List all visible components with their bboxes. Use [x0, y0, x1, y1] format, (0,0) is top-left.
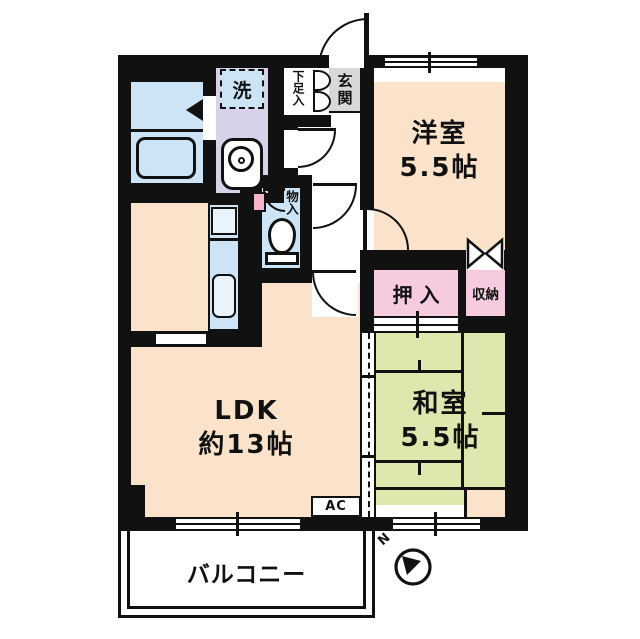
wall: [118, 68, 216, 82]
kitchen-sink-icon: [212, 274, 236, 318]
oshiire-label: 押入: [386, 279, 447, 308]
wall: [360, 68, 374, 113]
shuunou-label-wrap: 収納: [466, 281, 505, 305]
washroom-door-arc: [298, 130, 336, 168]
japanese-room-label: 和室 5.5帖: [376, 388, 505, 456]
corner-alcove: [464, 487, 505, 517]
ac-label: AC: [325, 499, 347, 514]
wall: [284, 115, 331, 127]
ac-unit: AC: [311, 496, 361, 517]
compass-icon: [392, 546, 434, 588]
genkan-label: 玄関: [335, 73, 356, 107]
wall: [300, 188, 312, 268]
entrance-door-leaf: [364, 13, 369, 70]
sliding-partition-divider: [360, 455, 376, 458]
wall: [240, 268, 312, 283]
hall-door-arc: [313, 185, 357, 229]
wall: [458, 270, 466, 316]
western-room-label: 洋室 5.5帖: [374, 118, 505, 186]
washbasin-drain: [238, 157, 245, 164]
oshiire-label-wrap: 押入: [374, 277, 458, 309]
sliding-partition: [360, 333, 376, 517]
bathroom-divider: [131, 129, 203, 132]
stove-icon: [211, 207, 237, 235]
monoire-label: 物入: [281, 190, 301, 222]
washer-box: 洗: [220, 69, 264, 109]
toilet-bowl-icon: [268, 218, 296, 254]
entrance-door-arc: [318, 18, 368, 68]
tatami-tick: [418, 463, 421, 475]
washroom-door-gap: [284, 130, 298, 168]
window-tick: [434, 512, 437, 536]
window-tick: [428, 52, 431, 73]
room-genkan: 玄関: [329, 68, 361, 113]
bathtub-icon: [136, 137, 196, 179]
window-western: [385, 56, 477, 68]
counter-divider: [208, 238, 240, 241]
room-kitchen: [131, 203, 208, 331]
shuunou-label: 収納: [472, 283, 499, 303]
washer-label: 洗: [232, 76, 251, 103]
bathroom-door-icon: [186, 99, 203, 121]
balcony-label: バルコニー: [187, 555, 307, 589]
wall: [458, 316, 505, 333]
tatami-tick: [418, 360, 421, 373]
sliding-partition-divider: [360, 375, 376, 378]
bathroom-door-gap: [203, 96, 216, 140]
wall: [505, 55, 528, 531]
wall: [118, 183, 216, 203]
fusuma-tick: [416, 311, 419, 338]
floor-plan: 玄関: [0, 0, 640, 639]
toilet-shelf: [252, 192, 266, 212]
wall: [118, 485, 145, 531]
storage-fold-door-icon: [465, 237, 505, 270]
kitchen-pass-through: [156, 334, 206, 344]
wall: [118, 55, 131, 531]
tatami-line: [376, 487, 464, 490]
balcony-label-wrap: バルコニー: [127, 556, 366, 588]
getabako-label: 下足入: [287, 70, 307, 116]
toilet-tank-icon: [265, 252, 299, 265]
ldk-label: LDK 約13帖: [131, 395, 362, 463]
